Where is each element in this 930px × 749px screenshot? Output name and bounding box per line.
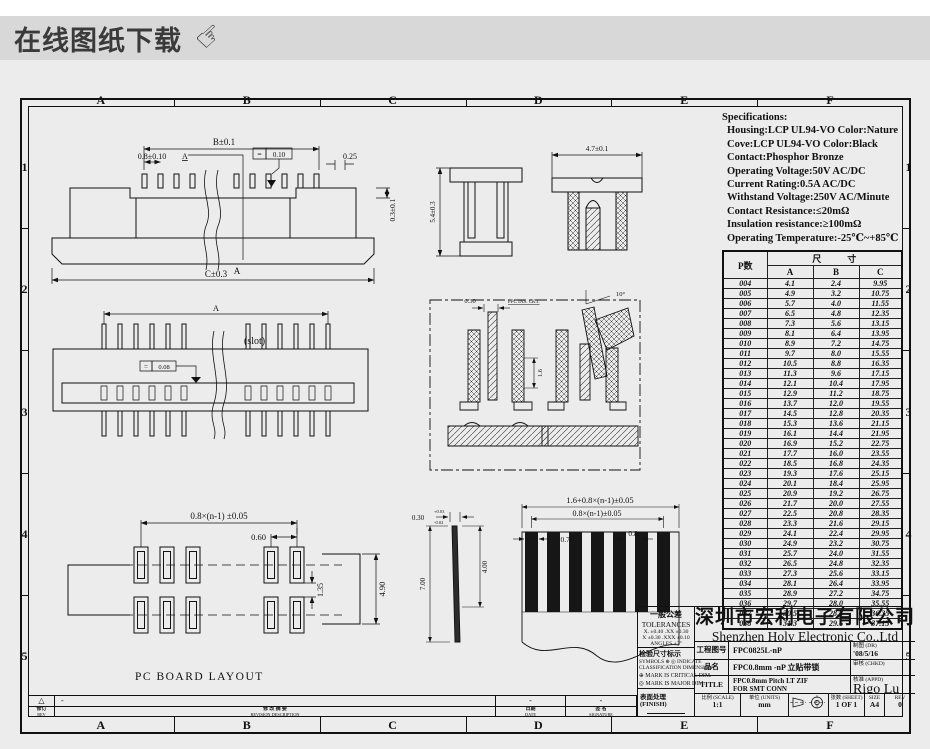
company-name-en: Shenzhen Holy Electronic Co.,Ltd: [695, 629, 915, 641]
frame-tick: [611, 98, 612, 106]
section-angle-label: 10°: [616, 291, 626, 298]
frame-tick: [174, 717, 175, 734]
sheet-cell: 张数 (SHEET) 1 OF 1: [829, 694, 865, 716]
pcb-gap-label: 1.35: [316, 583, 325, 597]
side-view-dims: [52, 146, 390, 284]
dim-lip-label: 0.3±0.1: [388, 198, 397, 221]
fpc-len1-label: 7.00: [419, 577, 427, 590]
revision-desc-header: 修 改 摘 要 REVISION DESCRIPTION: [55, 707, 496, 717]
download-banner[interactable]: 在线图纸下载 ☞: [0, 16, 930, 60]
part-name-value: FPC0.8mm -nP 立贴带锁: [729, 660, 851, 675]
dim-table-row: 01916.114.421.95: [723, 429, 902, 439]
frame-tick: [20, 473, 28, 474]
spec-line: Operating Temperature:-25℃~+85℃: [722, 232, 910, 245]
dim-table-row: 0076.54.812.35: [723, 309, 902, 319]
dim-table-row: 01815.313.621.15: [723, 419, 902, 429]
section-views-drawing: 0.30 FPC INS. CKT. 1.6 10°: [424, 284, 646, 476]
title-block-main: 深圳市宏利电子有限公司 Shenzhen Holy Electronic Co.…: [695, 607, 915, 716]
dim-table-row: 01311.39.617.15: [723, 369, 902, 379]
pin-count-header: P数: [723, 251, 767, 279]
front-left-geometry: [450, 168, 522, 256]
front-height-label: 5.4±0.3: [429, 201, 437, 223]
revision-mark: △: [29, 696, 55, 706]
frame-col-label: D: [532, 93, 544, 108]
part-name-label: 品名: [695, 660, 729, 675]
spec-line: Contact Resistance:≤20mΩ: [722, 205, 910, 218]
pins-down: [102, 411, 330, 436]
frame-row-label: 2: [19, 282, 31, 297]
spec-line: Current Rating:0.5A AC/DC: [722, 178, 910, 191]
frame-col-label: D: [532, 718, 544, 733]
top-view-geometry: [53, 324, 368, 439]
chkd-cell: 审核 (CHKD): [851, 660, 915, 675]
dim-table-row: 01714.512.820.35: [723, 409, 902, 419]
pcb-layout-drawing: 0.8×(n-1) ±0.05 0.60 1.35 4.90 PC BOARD …: [42, 492, 392, 688]
dim-table-row: 0098.16.413.95: [723, 329, 902, 339]
projection-symbol-icon: [790, 695, 828, 710]
dim-table-row: 02924.122.429.95: [723, 529, 902, 539]
fpc-thickness-label: 0.30: [412, 514, 425, 522]
revision-sign-value: -: [566, 696, 636, 706]
gdt-symbol: =: [257, 150, 262, 159]
frame-col-label: B: [241, 718, 253, 733]
finish-cell: 表面处理 (FINISH): [638, 688, 694, 716]
frame-tick: [903, 350, 911, 351]
frame-col-label: E: [678, 93, 690, 108]
scale-cell: 比例 (SCALE) 1:1: [695, 694, 741, 716]
front-views-drawing: 5.4±0.3 4.7±0.1: [428, 138, 658, 270]
dimension-table: P数 尺寸 A B C 0044.12.49.950054.93.210.750…: [722, 250, 903, 602]
spec-line: Contact:Phosphor Bronze: [722, 151, 910, 164]
dim-table-row: 02823.321.629.15: [723, 519, 902, 529]
dim-table-row: 02520.919.226.75: [723, 489, 902, 499]
fpc-fingers: [525, 532, 670, 612]
dim-table-row: 03024.923.230.75: [723, 539, 902, 549]
frame-col-label: F: [824, 93, 836, 108]
front-width-label: 4.7±0.1: [586, 144, 609, 153]
col-c-header: C: [859, 266, 902, 279]
company-name-cn: 深圳市宏利电子有限公司: [695, 607, 915, 629]
dim-table-row: 01613.712.019.55: [723, 399, 902, 409]
fpc-pitch-label: 0.8×(n-1)±0.05: [573, 509, 622, 518]
size-cell: SIZE A4: [865, 694, 885, 716]
fpc-len2-label: 4.00: [481, 560, 489, 573]
dim-table-row: 0087.35.613.15: [723, 319, 902, 329]
appd-cell: 核准 (APPD) Rigo Lu: [851, 676, 915, 693]
pins-up: [102, 324, 330, 349]
drawing-no-value: FPC0825L-nP: [729, 642, 851, 659]
scale-row: 比例 (SCALE) 1:1 单位 (UNITS) mm: [695, 693, 915, 716]
pcb-pad-label: 0.60: [251, 532, 266, 542]
revision-sign-header: 签 名 SIGNATURE: [566, 707, 636, 717]
frame-tick: [20, 595, 28, 596]
dimension-group-header: 尺寸: [767, 251, 902, 266]
fpc-side-geometry: [452, 526, 460, 642]
dim-table-row: 02117.716.023.55: [723, 449, 902, 459]
drawing-no-label: 工程图号: [695, 642, 729, 659]
dim-table-row: 03528.927.234.75: [723, 589, 902, 599]
frame-row-label: 3: [19, 405, 31, 420]
frame-tick: [174, 98, 175, 106]
frame-tick: [466, 717, 467, 734]
spec-line: Insulation resistance:≥100mΩ: [722, 218, 910, 231]
general-tolerance: 一般公差 TOLERANCES X. ±0.40 .XX ±0.30 X ±0.…: [638, 607, 694, 647]
dim-table-row: 02621.720.027.55: [723, 499, 902, 509]
revision-desc-value: -: [55, 696, 496, 706]
dim-table-row: 03428.126.433.95: [723, 579, 902, 589]
title-block: 一般公差 TOLERANCES X. ±0.40 .XX ±0.30 X ±0.…: [637, 606, 903, 717]
projection-symbol-cell: [789, 694, 829, 716]
title-value: FPC0.8mm Pitch LT ZIF FOR SMT CONN: [729, 676, 851, 693]
section-left-geometry: [448, 312, 548, 446]
gdt-value-2: 0.08: [158, 364, 169, 371]
dim-pitch-label: 0.8±0.10: [138, 152, 166, 161]
revision-strip: △ - - - 修订 REV 修 改 摘 要 REVISION DESCRIPT…: [28, 695, 637, 717]
frame-tick: [757, 98, 758, 106]
dim-025-label: 0.25: [343, 152, 357, 161]
dr-cell: 制图 (DR) '08/5/16: [851, 642, 915, 659]
frame-col-label: A: [95, 93, 107, 108]
pcb-pitch-label: 0.8×(n-1) ±0.05: [190, 511, 248, 521]
revision-date-value: -: [496, 696, 566, 706]
gdt-symbol-2: =: [144, 362, 148, 371]
tolerance-column: 一般公差 TOLERANCES X. ±0.40 .XX ±0.30 X ±0.…: [638, 607, 695, 716]
dim-table-row: 0119.78.015.55: [723, 349, 902, 359]
frame-row-label: 4: [19, 527, 31, 542]
frame-tick: [611, 717, 612, 734]
frame-col-label: B: [241, 93, 253, 108]
side-view-drawing: B±0.1 0.8±0.10 A = 0.10 0.25 0.3±0.1 C±0…: [38, 122, 398, 292]
dim-table-row: 0044.12.49.95: [723, 279, 902, 289]
spec-line: Cove:LCP UL94-VO Color:Black: [722, 138, 910, 151]
frame-tick: [757, 717, 758, 734]
col-a-header: A: [767, 266, 813, 279]
dim-table-row: 01210.58.816.35: [723, 359, 902, 369]
page: 在线图纸下载 ☞ AABBCCDDEEFF1122334455: [0, 0, 930, 749]
frame-row-label: 3: [903, 405, 915, 420]
dim-table-row: 0054.93.210.75: [723, 289, 902, 299]
frame-col-label: C: [387, 93, 399, 108]
top-strip: [0, 0, 930, 16]
fpc-total-label: 1.6+0.8×(n-1)±0.05: [566, 495, 633, 505]
dim-table-row: 02016.915.222.75: [723, 439, 902, 449]
frame-tick: [903, 595, 911, 596]
section-mark-top: A: [182, 152, 188, 161]
frame-tick: [20, 350, 28, 351]
spec-line: Withstand Voltage:250V AC/Minute: [722, 191, 910, 204]
dim-table-row: 01412.110.417.95: [723, 379, 902, 389]
frame-tick: [320, 98, 321, 106]
spec-lines: Housing:LCP UL94-VO Color:NatureCove:LCP…: [722, 124, 910, 245]
dim-table-row: 01512.911.218.75: [723, 389, 902, 399]
part-name-row: 品名 FPC0.8mm -nP 立贴带锁 审核 (CHKD): [695, 659, 915, 675]
top-view-drawing: A (slot) = 0.08: [38, 303, 388, 443]
frame-row-label: 4: [903, 527, 915, 542]
side-view-geometry: [52, 170, 374, 270]
dim-table-row: 0065.74.011.55: [723, 299, 902, 309]
dim-table-row: 02319.317.625.15: [723, 469, 902, 479]
dim-table-row: 03125.724.031.55: [723, 549, 902, 559]
title-row: TITLE FPC0.8mm Pitch LT ZIF FOR SMT CONN…: [695, 675, 915, 693]
frame-tick: [320, 717, 321, 734]
dim-table-row: 02722.520.828.35: [723, 509, 902, 519]
section-fpc-label: 0.30: [464, 298, 475, 305]
pointer-hand-icon: ☞: [188, 14, 231, 58]
gdt-value: 0.10: [273, 151, 286, 159]
rev-cell: REV 0: [885, 694, 915, 716]
fpc-finger-label: 0.70: [560, 535, 573, 544]
fpc-space-label: 0.8: [628, 529, 638, 538]
spec-line: Operating Voltage:50V AC/DC: [722, 165, 910, 178]
dim-a-label: A: [213, 303, 220, 313]
dim-table-row: 03226.524.832.35: [723, 559, 902, 569]
dim-c-label: C±0.3: [205, 269, 228, 279]
col-b-header: B: [813, 266, 859, 279]
pcb-caption: PC BOARD LAYOUT: [135, 671, 264, 683]
frame-col-label: E: [678, 718, 690, 733]
frame-col-label: F: [824, 718, 836, 733]
frame-row-label: 1: [19, 160, 31, 175]
front-right-geometry: [552, 178, 642, 250]
specifications-title: Specifications:: [722, 111, 910, 124]
revision-rev-header: 修订 REV: [29, 707, 55, 717]
dim-b-label: B±0.1: [213, 137, 235, 147]
approver-name: Rigo Lu: [853, 683, 913, 693]
frame-tick: [903, 473, 911, 474]
specifications-block: Specifications: Housing:LCP UL94-VO Colo…: [722, 111, 910, 245]
dim-table-row: 03327.325.633.15: [723, 569, 902, 579]
section-depth-label: 1.6: [537, 368, 544, 377]
banner-title: 在线图纸下载: [14, 19, 182, 58]
slot-label: (slot): [244, 336, 265, 347]
dim-table-body: 0044.12.49.950054.93.210.750065.74.011.5…: [723, 279, 902, 630]
section-note: FPC INS. CKT.: [508, 300, 540, 305]
dim-table-row: 02420.118.425.95: [723, 479, 902, 489]
fpc-th-up: +0.03: [434, 509, 445, 514]
revision-date-header: 日期 DATE: [496, 707, 566, 717]
frame-row-label: 5: [19, 649, 31, 664]
frame-tick: [466, 98, 467, 106]
finish-blank-line: [647, 713, 685, 714]
section-right-geometry: [542, 307, 638, 446]
frame-col-label: A: [95, 718, 107, 733]
title-label: TITLE: [695, 676, 729, 693]
units-cell: 单位 (UNITS) mm: [741, 694, 789, 716]
fpc-th-dn: -0.02: [434, 520, 443, 525]
section-mark-bottom: A: [234, 266, 241, 276]
inspection-note: 检验尺寸标示 SYMBOLS ⊕ ◎ INDICATE CLASSIFICATI…: [638, 647, 694, 688]
pins: [142, 174, 319, 188]
drawing-no-row: 工程图号 FPC0825L-nP 制图 (DR) '08/5/16: [695, 641, 915, 659]
frame-col-label: C: [387, 718, 399, 733]
frame-tick: [20, 228, 28, 229]
spec-line: Housing:LCP UL94-VO Color:Nature: [722, 124, 910, 137]
company-block: 深圳市宏利电子有限公司 Shenzhen Holy Electronic Co.…: [695, 607, 915, 641]
dim-table-row: 02218.516.824.35: [723, 459, 902, 469]
frame-row-label: 2: [903, 282, 915, 297]
dim-table-row: 0108.97.214.75: [723, 339, 902, 349]
